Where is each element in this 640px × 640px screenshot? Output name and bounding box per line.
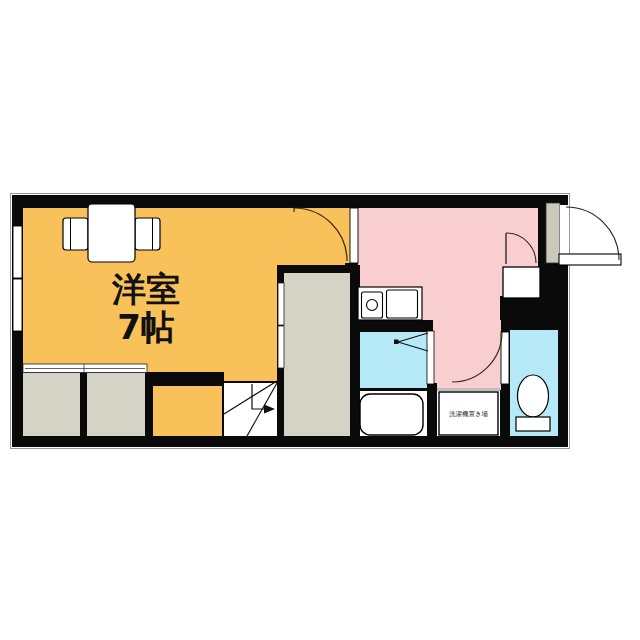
entrance-door-panel bbox=[546, 203, 560, 263]
toilet-icon bbox=[516, 375, 550, 431]
closet-door-panel bbox=[278, 326, 284, 368]
western-room-above-stairs bbox=[224, 372, 277, 381]
washing-machine-area: 洗濯機置き場 bbox=[437, 388, 500, 436]
floor-plan-canvas: 洗濯機置き場 洋室 7帖 bbox=[0, 0, 640, 640]
floor-plan: 洗濯機置き場 洋室 7帖 bbox=[0, 0, 640, 640]
kitchen-sink-icon bbox=[358, 287, 422, 320]
entrance-door-leaf bbox=[559, 254, 621, 265]
bathtub-icon bbox=[360, 394, 423, 435]
closet-sliding-doors bbox=[23, 364, 147, 373]
closet-left bbox=[23, 373, 80, 436]
closet-right bbox=[87, 373, 145, 436]
western-room-label: 洋室 bbox=[111, 269, 180, 309]
bath-wall bbox=[427, 383, 437, 436]
bathroom bbox=[357, 332, 427, 388]
western-room-door-opening bbox=[345, 208, 350, 263]
western-room-size-label: 7帖 bbox=[117, 307, 175, 347]
door-leaf bbox=[501, 332, 509, 384]
closet-door-panel bbox=[278, 283, 284, 325]
chair-right bbox=[135, 218, 160, 250]
sink-faucet bbox=[367, 300, 378, 311]
washer-space-label: 洗濯機置き場 bbox=[449, 410, 489, 418]
tall-closet bbox=[277, 265, 360, 436]
door-leaf bbox=[350, 208, 358, 263]
western-room-alcove bbox=[153, 386, 222, 436]
entrance-door-arc bbox=[566, 207, 619, 260]
entrance-door bbox=[546, 203, 621, 265]
stairs bbox=[224, 381, 277, 436]
table bbox=[88, 204, 135, 262]
chair-left bbox=[63, 218, 88, 250]
